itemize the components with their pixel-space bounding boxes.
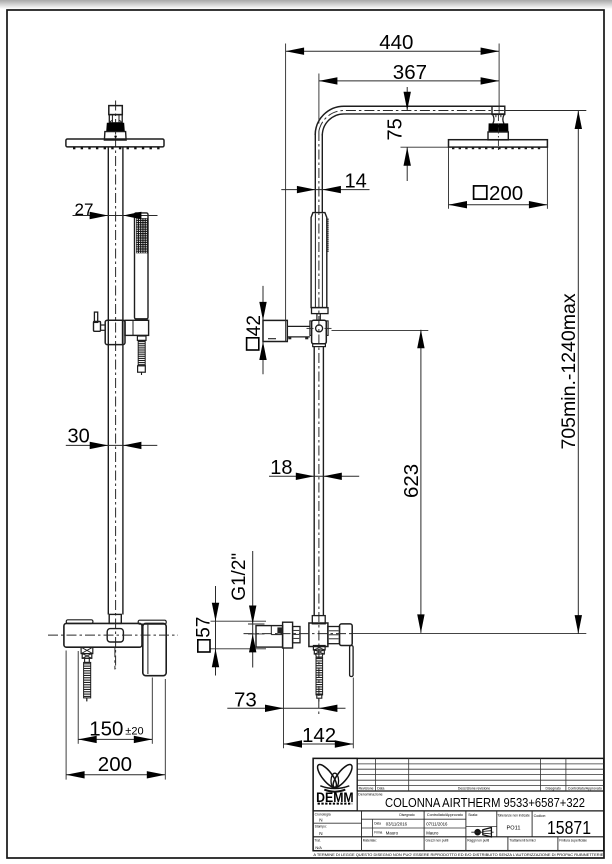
svg-text:Data: Data [374,822,381,826]
svg-text:Mauro: Mauro [386,830,399,835]
svg-text:DEMM: DEMM [316,790,354,805]
svg-text:Grezzi non puliti: Grezzi non puliti [426,839,449,843]
svg-text:Disegnato: Disegnato [399,813,414,817]
svg-text:N: N [319,818,322,823]
svg-text:Denominazione: Denominazione [358,792,382,796]
svg-text:623: 623 [400,464,423,498]
svg-text:A TERMINE DI LEGGE QUESTO DISE: A TERMINE DI LEGGE QUESTO DISEGNO NON PU… [313,853,604,857]
svg-text:75: 75 [385,118,407,140]
svg-text:Firma: Firma [374,831,382,835]
svg-text:705min.-1240max: 705min.-1240max [558,293,580,449]
svg-text:42: 42 [244,315,265,336]
svg-text:N/A: N/A [315,845,322,850]
svg-text:G1/2": G1/2" [229,553,250,601]
svg-text:Cronologia: Cronologia [315,812,331,816]
svg-text:Descrizione revisione: Descrizione revisione [458,787,490,791]
svg-text:Controllato/Approvato: Controllato/Approvato [568,787,602,791]
svg-text:COLONNA AIRTHERM 9533+6587+322: COLONNA AIRTHERM 9533+6587+322 [385,796,585,810]
svg-text:Scala:: Scala: [468,813,478,817]
svg-text:Data: Data [377,787,384,791]
svg-text:Controllato/Approvato: Controllato/Approvato [427,813,463,817]
svg-text:±20: ±20 [125,726,143,738]
svg-text:200: 200 [489,182,523,205]
svg-text:200: 200 [98,753,132,776]
svg-text:Mauro: Mauro [426,830,439,835]
svg-text:03/11/2016: 03/11/2016 [386,821,408,826]
svg-text:Tolleranze non indicate: Tolleranze non indicate [497,813,530,817]
svg-text:PO11: PO11 [507,825,521,831]
svg-text:Disegnato: Disegnato [546,787,561,791]
svg-text:30: 30 [68,426,90,448]
svg-text:Trat.: Trat. [314,839,321,843]
svg-text:Materiale:: Materiale: [363,839,377,843]
svg-text:15871: 15871 [547,817,591,838]
svg-text:07/11/2016: 07/11/2016 [426,821,448,826]
svg-text:Stampo:: Stampo: [315,825,327,829]
svg-text:Trattamenti termici: Trattamenti termici [509,839,536,843]
svg-text:N: N [319,831,322,836]
svg-text:Raggi non puliti: Raggi non puliti [467,839,489,843]
svg-text:Revisione: Revisione [359,787,374,791]
svg-text:Finitura superficiale: Finitura superficiale [559,839,587,843]
svg-text:Codice:: Codice: [534,814,547,818]
svg-text:57: 57 [194,617,215,638]
